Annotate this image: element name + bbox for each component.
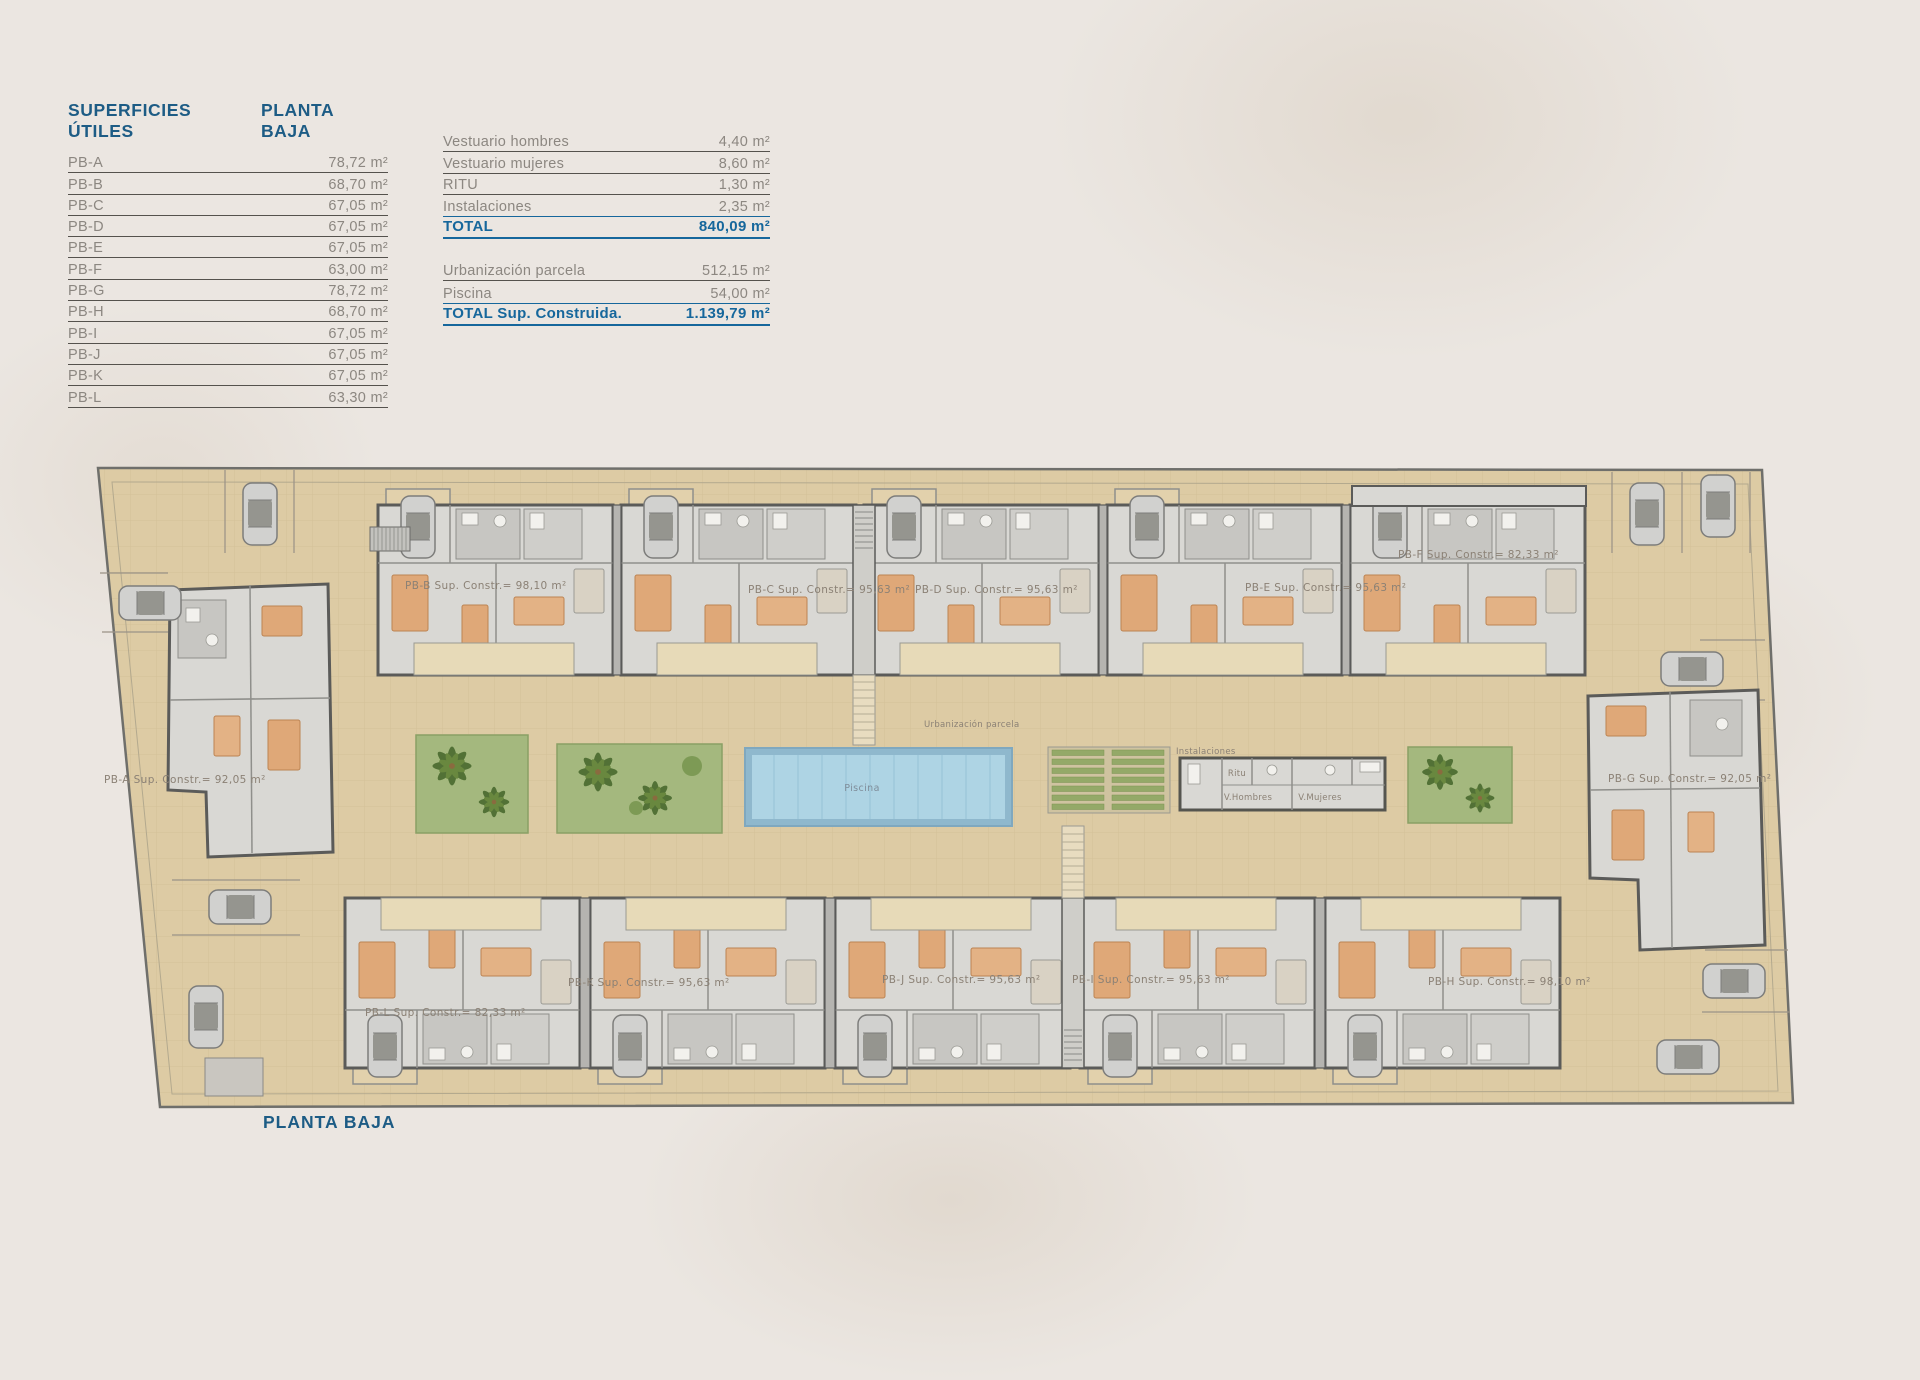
vestuario-mujeres-label: V.Mujeres — [1298, 793, 1342, 803]
table-subtitle: PLANTA BAJA — [261, 100, 388, 142]
total-row: TOTAL840,09 m² — [443, 216, 770, 239]
unit-area: 67,05 m² — [328, 368, 388, 384]
table-row: PB-J67,05 m² — [68, 344, 388, 365]
table-row: PB-D67,05 m² — [68, 216, 388, 237]
unit-label-pb-j: PB-J Sup. Constr.= 95,63 m² — [882, 974, 1040, 986]
total-label: TOTAL — [443, 218, 493, 235]
unit-label-pb-a: PB-A Sup. Constr.= 92,05 m² — [104, 774, 266, 786]
unit-code: PB-D — [68, 219, 104, 235]
useful-areas-table: SUPERFICIES ÚTILES PLANTA BAJA PB-A78,72… — [68, 100, 388, 408]
table-row: Vestuario mujeres8,60 m² — [443, 152, 770, 173]
unit-label-pb-h: PB-H Sup. Constr.= 98,10 m² — [1428, 976, 1591, 988]
palm-tree-icon — [578, 752, 617, 791]
palm-tree-icon — [1422, 754, 1458, 790]
car-icon — [1701, 475, 1735, 537]
unit-code: PB-F — [68, 262, 102, 278]
table-row: Urbanización parcela512,15 m² — [443, 260, 770, 281]
table-row: PB-A78,72 m² — [68, 152, 388, 173]
unit-code: PB-J — [68, 347, 101, 363]
unit-label-pb-l: PB-L Sup. Constr.= 82,33 m² — [365, 1007, 526, 1019]
unit-label-pb-g: PB-G Sup. Constr.= 92,05 m² — [1608, 773, 1771, 785]
unit-area: 67,05 m² — [328, 347, 388, 363]
row-value: 8,60 m² — [719, 156, 770, 172]
row-label: Vestuario hombres — [443, 134, 569, 150]
unit-label-pb-e: PB-E Sup. Constr.= 95,63 m² — [1245, 582, 1406, 594]
palm-tree-icon — [638, 781, 672, 815]
car-icon — [243, 483, 277, 545]
apartment-unit — [1325, 898, 1560, 1084]
table-row: PB-L63,30 m² — [68, 386, 388, 407]
car-icon — [1661, 652, 1723, 686]
unit-area: 68,70 m² — [328, 304, 388, 320]
table-row: RITU1,30 m² — [443, 174, 770, 195]
bush-icon — [629, 801, 643, 815]
swimming-pool: Piscina — [745, 748, 1012, 826]
unit-label-pb-b: PB-B Sup. Constr.= 98,10 m² — [405, 580, 567, 592]
apartment-unit — [590, 898, 825, 1084]
table-row: Instalaciones2,35 m² — [443, 195, 770, 216]
unit-code: PB-C — [68, 198, 104, 214]
pool-label: Piscina — [844, 783, 880, 794]
garden — [1408, 747, 1512, 823]
table-row: PB-K67,05 m² — [68, 365, 388, 386]
palm-tree-icon — [479, 787, 510, 818]
car-icon — [189, 986, 223, 1048]
car-icon — [1657, 1040, 1719, 1074]
unit-label-pb-k: PB-K Sup. Constr.= 95,63 m² — [568, 977, 730, 989]
car-icon — [1703, 964, 1765, 998]
unit-area: 67,05 m² — [328, 240, 388, 256]
palm-tree-icon — [1466, 784, 1495, 813]
row-value: 1,30 m² — [719, 177, 770, 193]
plan-caption: PLANTA BAJA — [263, 1112, 396, 1133]
vestuario-hombres-label: V.Hombres — [1224, 793, 1273, 803]
apartment-unit — [835, 898, 1070, 1084]
unit-code: PB-I — [68, 326, 97, 342]
row-label: Urbanización parcela — [443, 263, 585, 279]
row-label: Instalaciones — [443, 199, 532, 215]
unit-code: PB-L — [68, 390, 101, 406]
car-icon — [209, 890, 271, 924]
apartment-unit — [621, 489, 856, 675]
table-gap — [443, 239, 770, 260]
palm-tree-icon — [432, 746, 471, 785]
table-row: PB-E67,05 m² — [68, 237, 388, 258]
unit-code: PB-A — [68, 155, 103, 171]
row-value: 4,40 m² — [719, 134, 770, 150]
unit-label-pb-d: PB-D Sup. Constr.= 95,63 m² — [915, 584, 1078, 596]
row-label: RITU — [443, 177, 478, 193]
unit-code: PB-B — [68, 177, 103, 193]
grand-total-value: 1.139,79 m² — [686, 305, 770, 322]
table-row: PB-B68,70 m² — [68, 173, 388, 194]
unit-area: 78,72 m² — [328, 283, 388, 299]
unit-area: 67,05 m² — [328, 219, 388, 235]
unit-label-pb-f: PB-F Sup. Constr.= 82,33 m² — [1398, 549, 1559, 561]
car-icon — [1630, 483, 1664, 545]
bush-icon — [682, 756, 702, 776]
table-row: PB-I67,05 m² — [68, 322, 388, 343]
table-row: PB-C67,05 m² — [68, 195, 388, 216]
table-row: Piscina54,00 m² — [443, 281, 770, 302]
unit-code: PB-H — [68, 304, 104, 320]
row-value: 2,35 m² — [719, 199, 770, 215]
concrete-pad — [205, 1058, 263, 1096]
table-row: PB-H68,70 m² — [68, 301, 388, 322]
ritu-label: Ritu — [1228, 769, 1246, 779]
garden — [416, 735, 528, 833]
table-row: PB-G78,72 m² — [68, 280, 388, 301]
apartment-unit — [345, 898, 580, 1084]
apartment-unit — [1080, 898, 1315, 1084]
row-value: 54,00 m² — [710, 286, 770, 302]
table-title: SUPERFICIES ÚTILES — [68, 100, 261, 142]
apartment-unit — [864, 489, 1099, 675]
grand-total-row: TOTAL Sup. Construida.1.139,79 m² — [443, 303, 770, 326]
facilities-label: Instalaciones — [1176, 747, 1236, 757]
unit-area: 67,05 m² — [328, 326, 388, 342]
summary-table: Vestuario hombres4,40 m² Vestuario mujer… — [443, 131, 770, 326]
unit-area: 78,72 m² — [328, 155, 388, 171]
unit-code: PB-K — [68, 368, 103, 384]
unit-area: 67,05 m² — [328, 198, 388, 214]
unit-area: 68,70 m² — [328, 177, 388, 193]
pergola — [1048, 747, 1170, 813]
grand-total-label: TOTAL Sup. Construida. — [443, 305, 622, 322]
building-strip-bottom — [345, 898, 1560, 1084]
table-row: Vestuario hombres4,40 m² — [443, 131, 770, 152]
row-label: Vestuario mujeres — [443, 156, 564, 172]
car-icon — [119, 586, 181, 620]
unit-code: PB-G — [68, 283, 105, 299]
table-header: SUPERFICIES ÚTILES PLANTA BAJA — [68, 100, 388, 142]
total-value: 840,09 m² — [699, 218, 770, 235]
table-row: PB-F63,00 m² — [68, 258, 388, 279]
unit-label-pb-i: PB-I Sup. Constr.= 95,63 m² — [1072, 974, 1230, 986]
unit-area: 63,30 m² — [328, 390, 388, 406]
row-label: Piscina — [443, 286, 492, 302]
garden — [557, 744, 722, 833]
row-value: 512,15 m² — [702, 263, 770, 279]
unit-area: 63,00 m² — [328, 262, 388, 278]
urbanizacion-label: Urbanización parcela — [924, 719, 1019, 730]
unit-code: PB-E — [68, 240, 103, 256]
unit-label-pb-c: PB-C Sup. Constr.= 95,63 m² — [748, 584, 910, 596]
